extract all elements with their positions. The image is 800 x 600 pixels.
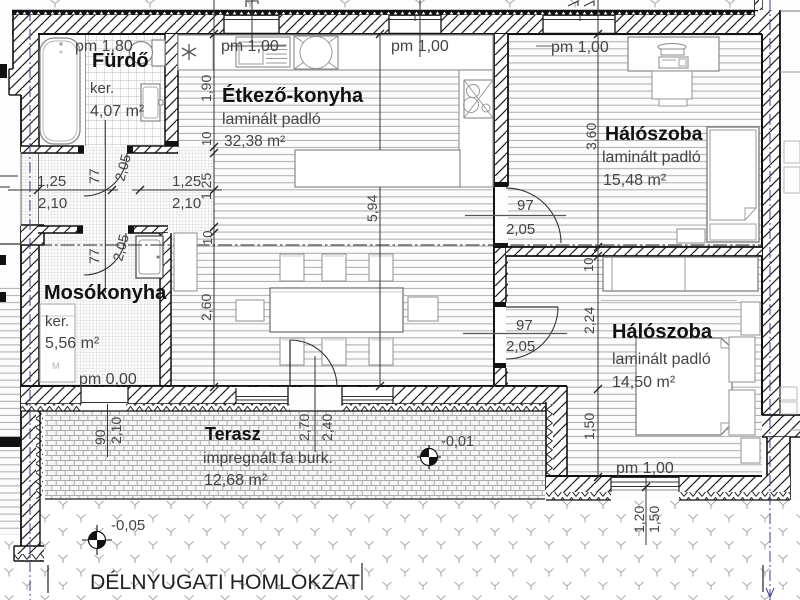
svg-text:2,10: 2,10 (172, 195, 201, 212)
svg-text:10: 10 (581, 258, 596, 272)
svg-text:Fürdő: Fürdő (92, 50, 149, 72)
svg-text:pm 1,00: pm 1,00 (221, 38, 279, 55)
svg-text:10: 10 (199, 132, 214, 146)
svg-text:2,70: 2,70 (296, 414, 312, 441)
svg-text:15,48 m²: 15,48 m² (603, 172, 667, 189)
svg-text:97: 97 (516, 317, 533, 334)
svg-text:10: 10 (200, 231, 215, 245)
svg-text:77: 77 (86, 248, 102, 264)
svg-text:ker.: ker. (45, 313, 69, 330)
svg-text:Hálószoba: Hálószoba (612, 321, 713, 343)
svg-text:5,94: 5,94 (364, 195, 380, 222)
svg-text:2,05: 2,05 (506, 338, 535, 355)
svg-text:Hálószoba: Hálószoba (605, 123, 703, 145)
svg-text:laminált padló: laminált padló (222, 111, 321, 128)
svg-text:2,10: 2,10 (108, 417, 124, 444)
svg-text:pm 0,00: pm 0,00 (79, 371, 137, 388)
svg-text:2,60: 2,60 (198, 294, 214, 321)
svg-text:Étkező-konyha: Étkező-konyha (222, 84, 364, 107)
svg-text:laminált padló: laminált padló (602, 149, 701, 166)
svg-text:77: 77 (86, 168, 102, 184)
svg-text:2,05: 2,05 (506, 221, 535, 238)
svg-text:-0,01: -0,01 (441, 434, 474, 450)
svg-text:laminált padló: laminált padló (612, 351, 711, 368)
svg-text:3,60: 3,60 (583, 123, 599, 150)
svg-text:1,25: 1,25 (198, 173, 214, 200)
svg-text:1,25: 1,25 (37, 173, 66, 190)
svg-text:1,90: 1,90 (198, 75, 214, 102)
svg-text:Terasz: Terasz (205, 424, 261, 444)
svg-text:1,20: 1,20 (631, 506, 647, 533)
svg-text:90: 90 (92, 429, 108, 445)
svg-text:pm 1,00: pm 1,00 (391, 38, 449, 55)
svg-text:5,56 m²: 5,56 m² (45, 335, 100, 352)
svg-text:pm 1,00: pm 1,00 (551, 39, 609, 56)
svg-text:97: 97 (517, 197, 534, 214)
svg-text:1,50: 1,50 (581, 413, 597, 440)
svg-text:ker.: ker. (90, 80, 114, 97)
svg-text:Mosókonyha: Mosókonyha (44, 282, 167, 304)
svg-text:2,40: 2,40 (319, 414, 335, 441)
svg-text:1,25: 1,25 (172, 173, 201, 190)
svg-text:12,68 m²: 12,68 m² (204, 472, 268, 489)
svg-text:pm 1,00: pm 1,00 (616, 460, 674, 477)
svg-text:4,07 m²: 4,07 m² (90, 103, 145, 120)
svg-text:32,38 m²: 32,38 m² (224, 133, 285, 150)
svg-text:1,50: 1,50 (646, 506, 662, 533)
svg-text:impregnált fa burk.: impregnált fa burk. (203, 450, 333, 467)
svg-text:14,50 m²: 14,50 m² (612, 374, 676, 391)
svg-text:2,10: 2,10 (38, 195, 67, 212)
svg-text:DÉLNYUGATI HOMLOKZAT: DÉLNYUGATI HOMLOKZAT (90, 569, 360, 594)
svg-text:2,24: 2,24 (581, 307, 597, 334)
svg-text:-0,05: -0,05 (111, 517, 145, 534)
svg-text:M: M (52, 361, 60, 371)
